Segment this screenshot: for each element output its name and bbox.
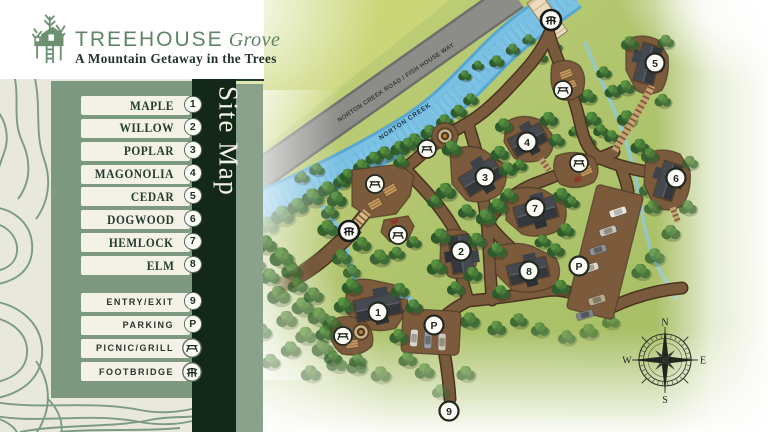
svg-text:P: P	[575, 261, 582, 273]
svg-text:N: N	[661, 318, 668, 329]
svg-text:9: 9	[446, 406, 452, 418]
svg-text:2: 2	[458, 246, 464, 258]
svg-text:3: 3	[482, 172, 488, 184]
svg-text:7: 7	[532, 203, 538, 215]
svg-text:W: W	[622, 356, 632, 367]
svg-text:S: S	[662, 395, 668, 406]
svg-text:1: 1	[375, 307, 381, 319]
svg-text:4: 4	[524, 137, 530, 149]
svg-text:E: E	[700, 356, 706, 367]
svg-text:5: 5	[652, 58, 658, 70]
svg-text:8: 8	[526, 266, 532, 278]
svg-text:P: P	[430, 320, 437, 332]
svg-text:6: 6	[673, 173, 679, 185]
